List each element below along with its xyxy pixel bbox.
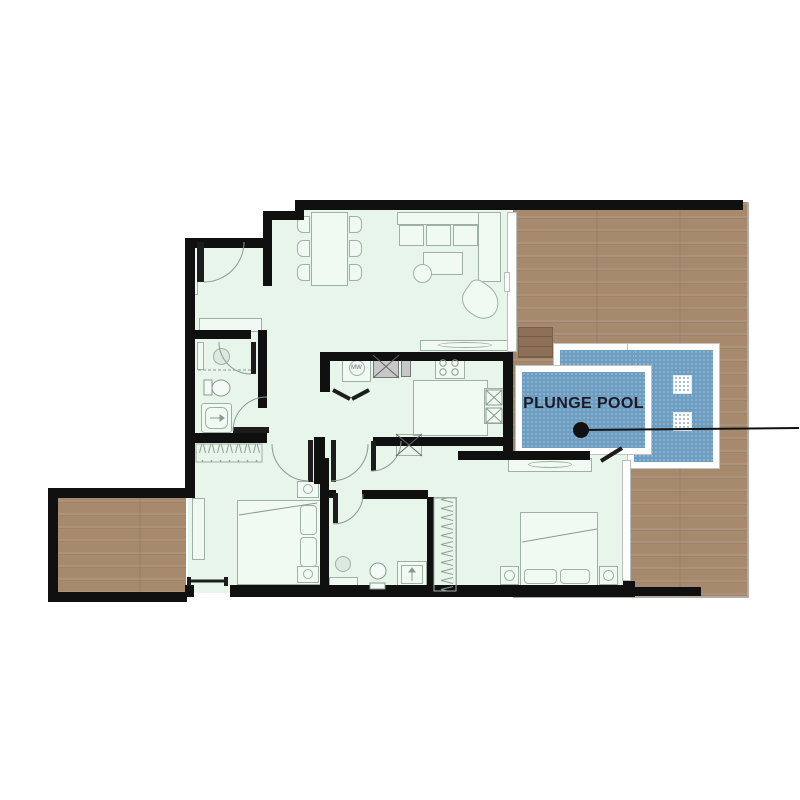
- dining-chair: [297, 240, 310, 257]
- wall-entry-top: [185, 238, 265, 248]
- nightstand-lamp: [303, 484, 313, 494]
- floor-plan: PLUNGE POOL MW: [0, 0, 800, 800]
- dining-chair: [349, 216, 362, 233]
- floor-hallway: [265, 335, 323, 443]
- side-table: [413, 264, 432, 283]
- nightstand-lamp: [504, 570, 515, 581]
- dining-table: [311, 212, 348, 286]
- bed-1-pillow: [300, 537, 317, 567]
- kitchen-sink: [484, 388, 504, 424]
- bed-2-pillow: [524, 569, 557, 584]
- tv-console-detail: [528, 461, 572, 468]
- wall-ldeck-top: [48, 488, 187, 498]
- wall-bath1-right: [258, 330, 267, 408]
- sofa-cushion: [453, 225, 478, 246]
- wall-living-west: [263, 211, 272, 286]
- wall-bedroom1-right: [320, 458, 329, 593]
- kitchen-island: [413, 380, 488, 436]
- dining-chair: [349, 264, 362, 281]
- bath1-bathtub-inner: [205, 407, 228, 429]
- pool-step-pad-2: [673, 412, 692, 431]
- wall-bath2-top-a: [328, 490, 336, 498]
- pool-step-pad-1: [673, 375, 692, 394]
- plunge-pool-label: PLUNGE POOL: [522, 395, 645, 413]
- sofa-cushion: [426, 225, 451, 246]
- dining-chair: [297, 264, 310, 281]
- sofa-cushion: [399, 225, 424, 246]
- bath2-shower-inner: [401, 565, 423, 584]
- dining-chair: [349, 240, 362, 257]
- wardrobe-2-body: [433, 497, 457, 592]
- dresser-1: [192, 498, 205, 560]
- bath2-shower-drain: [335, 556, 351, 572]
- wall-bath1-bottom: [185, 433, 267, 443]
- wall-ldeck-left: [48, 488, 58, 602]
- bath1-shower-drain: [213, 348, 230, 365]
- wall-bath2-right: [427, 497, 434, 593]
- wall-west: [185, 238, 195, 498]
- washing-machine-label: MW: [342, 365, 371, 371]
- bed-1-pillow: [300, 505, 317, 535]
- bed-2-pillow: [560, 569, 590, 584]
- wall-kitchen-bottom: [373, 437, 504, 446]
- wall-top: [295, 200, 743, 210]
- bath1-vanity: [197, 342, 204, 370]
- sideboard-detail: [438, 342, 492, 348]
- wall-bedroom2-top: [458, 451, 590, 460]
- bedroom2-glass-wall: [622, 460, 631, 581]
- wall-kitchen-right: [503, 352, 513, 458]
- wall-kitchen-top: [320, 352, 513, 361]
- living-door-handle: [504, 272, 510, 292]
- wall-bath1-top: [193, 330, 251, 339]
- wall-bath2-top-b: [362, 490, 428, 499]
- wall-bottom-d: [633, 587, 701, 596]
- nightstand-lamp: [303, 569, 313, 579]
- deck-left: [56, 496, 186, 594]
- sofa-chaise: [478, 212, 501, 282]
- deck-steps: [518, 327, 553, 358]
- wall-bottom-b: [230, 585, 628, 597]
- wall-ldeck-bottom: [48, 592, 187, 602]
- nightstand-lamp: [603, 570, 614, 581]
